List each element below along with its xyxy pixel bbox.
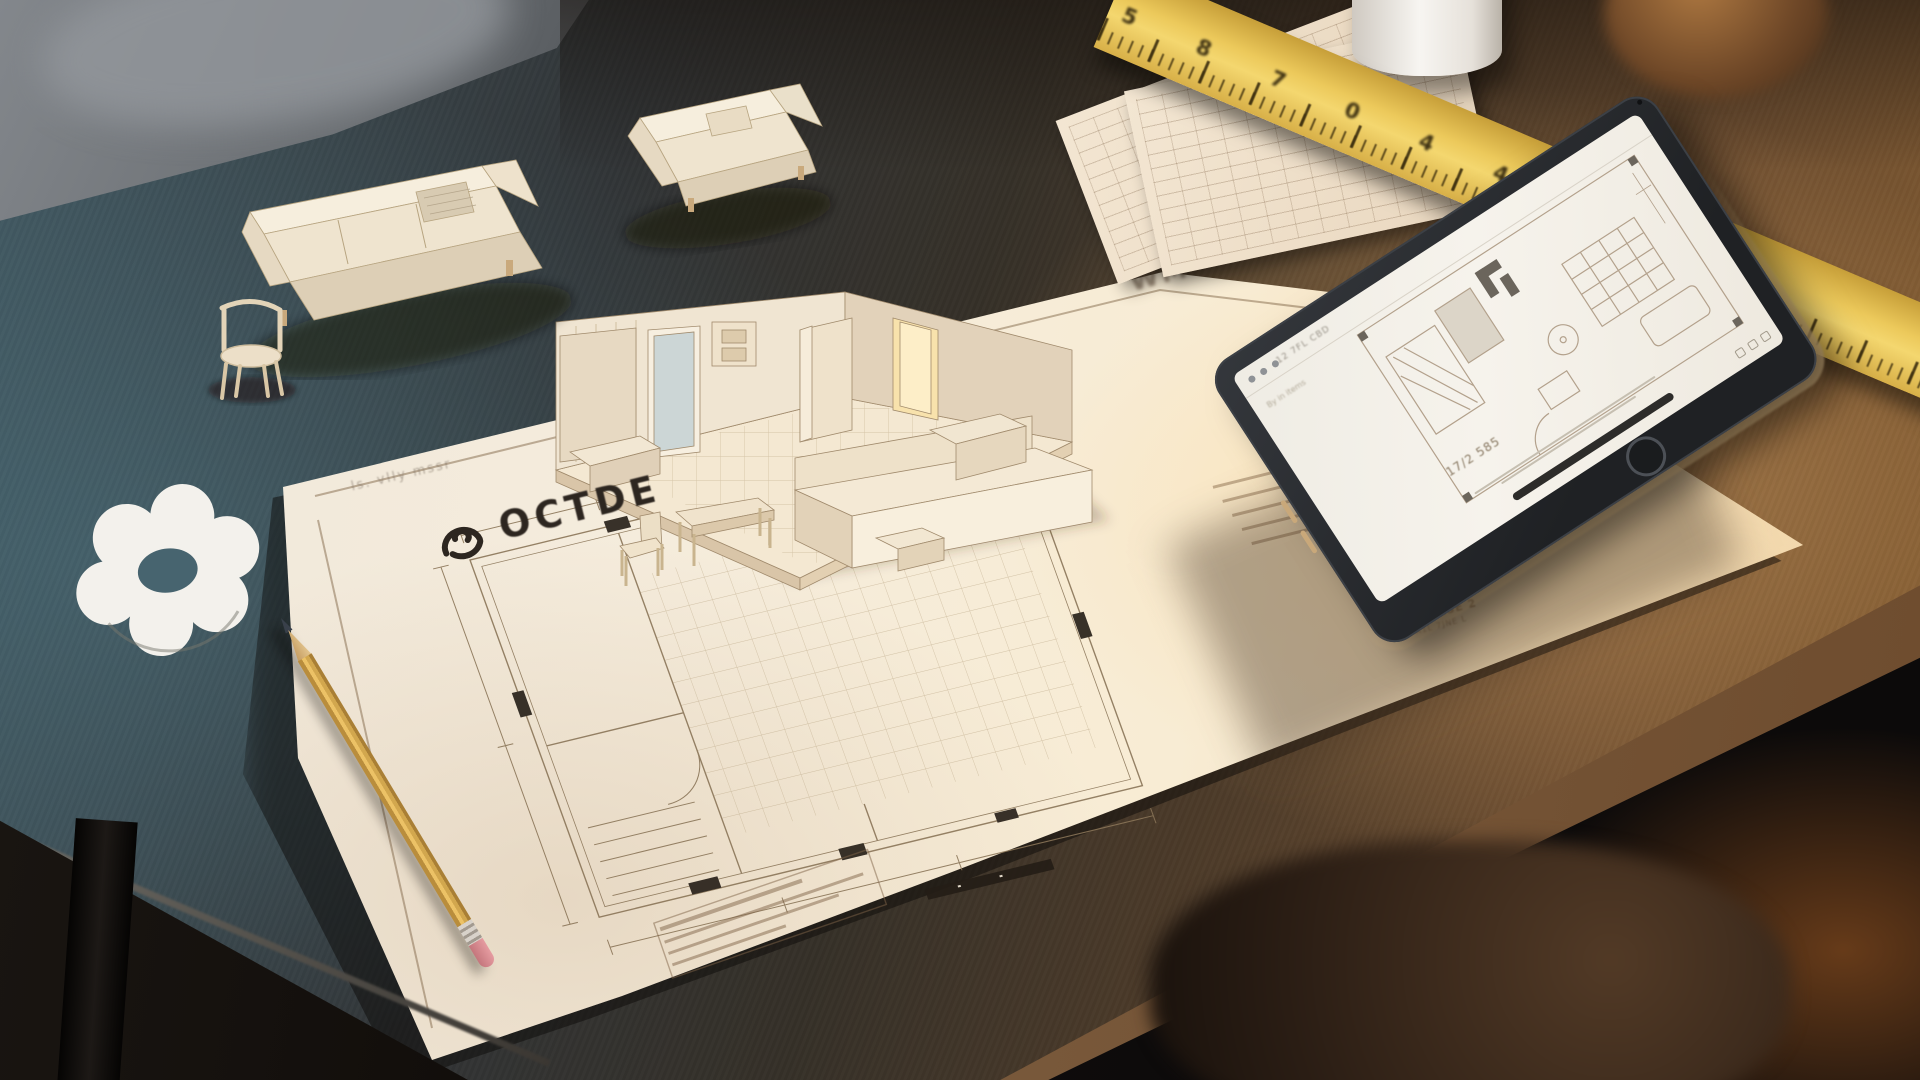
mini-side-chair [196, 286, 316, 416]
ruler-number: 0 [1341, 97, 1364, 125]
mini-sofa-loveseat [610, 58, 850, 258]
ruler-number: 8 [1192, 34, 1215, 62]
window-control-dots[interactable] [1247, 359, 1280, 384]
leather-chair [1150, 840, 1790, 1080]
flower-template [62, 482, 282, 662]
ruler-number: 5 [1118, 3, 1141, 31]
white-cup [1352, 0, 1502, 76]
ruler-number: 7 [1267, 66, 1290, 94]
ruler-number: 4 [1415, 129, 1438, 157]
architect-desk-scene: OCTDE ls. vlly mssr WM Mhv BETZKCESE 2 F… [0, 0, 1920, 1080]
camera-dot [1636, 99, 1643, 106]
